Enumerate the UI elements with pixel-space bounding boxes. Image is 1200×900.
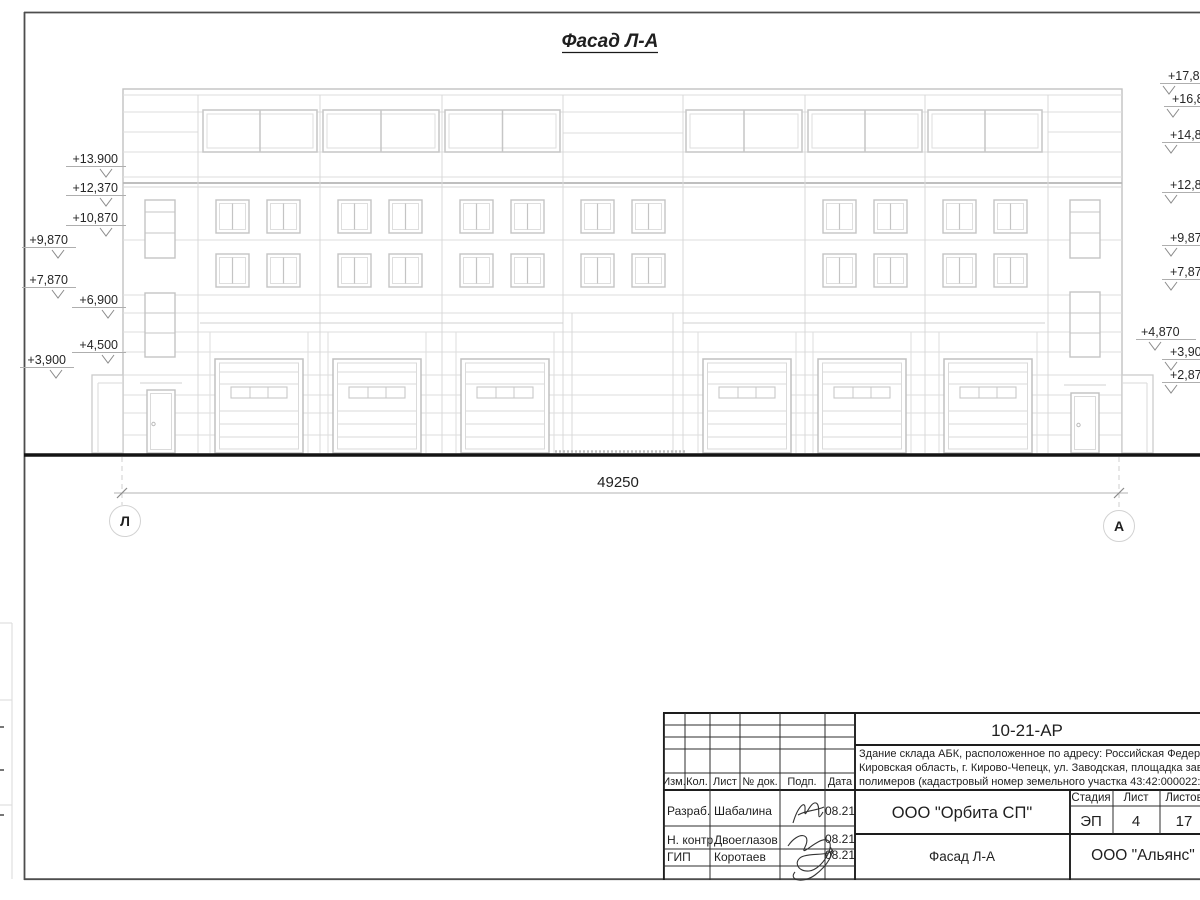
svg-text:+12,370: +12,370	[72, 181, 118, 195]
stage-label: Стадия	[1071, 792, 1110, 804]
level-mark: +14,870	[1162, 128, 1200, 153]
col-date: Дата	[828, 776, 853, 788]
level-mark: +4,500	[72, 338, 126, 363]
drawing-sheet: Фасад Л-А +13.900 +12,370 +10,870 +9,870…	[0, 0, 1200, 900]
level-mark: +3,900	[20, 353, 74, 378]
level-mark: +7,870	[1162, 265, 1200, 290]
sheet-number: 4	[1132, 813, 1140, 830]
level-mark: +10,870	[66, 211, 126, 236]
svg-text:+16,870: +16,870	[1172, 92, 1200, 106]
svg-text:+9,870: +9,870	[1170, 231, 1200, 245]
col-kol: Кол.	[686, 776, 708, 788]
row2-name: Двоеглазов	[714, 833, 778, 847]
level-mark: +12,870	[1162, 178, 1200, 203]
dimension-49250: 49250	[114, 457, 1128, 509]
axis-bubble-right: А	[1104, 511, 1135, 542]
svg-text:+9,870: +9,870	[29, 233, 68, 247]
doc-number: 10-21-АР	[991, 721, 1063, 740]
page-title: Фасад Л-А	[562, 31, 659, 52]
sheets-label: Листов	[1165, 792, 1200, 804]
description-line1: Здание склада АБК, расположенное по адре…	[859, 748, 1200, 760]
svg-text:+12,870: +12,870	[1170, 178, 1200, 192]
svg-text:+4,500: +4,500	[79, 338, 118, 352]
facade-sheet-svg: Фасад Л-А +13.900 +12,370 +10,870 +9,870…	[0, 0, 1200, 900]
col-izm: Изм.	[662, 776, 686, 788]
level-mark: +3,900	[1162, 345, 1200, 370]
col-sign: Подп.	[787, 776, 816, 788]
elevation-marks-left: +13.900 +12,370 +10,870 +9,870 +7,870 +6…	[20, 152, 126, 378]
drawing-name: Фасад Л-А	[929, 849, 995, 864]
level-mark: +2,870	[1162, 368, 1200, 393]
svg-text:+7,870: +7,870	[29, 273, 68, 287]
level-mark: +13.900	[66, 152, 126, 177]
row1-date: 08.21	[825, 804, 855, 818]
design-org: ООО "Орбита СП"	[892, 804, 1033, 822]
col-list: Лист	[713, 776, 737, 788]
axis-label-l: Л	[120, 513, 130, 529]
row3-role: ГИП	[667, 850, 691, 864]
level-mark: +6,900	[72, 293, 126, 318]
svg-text:+3,900: +3,900	[1170, 345, 1200, 359]
title-block: Изм. Кол. Лист № док. Подп. Дата Разраб.…	[662, 713, 1200, 880]
svg-text:+14,870: +14,870	[1170, 128, 1200, 142]
level-mark: +9,870	[22, 233, 76, 258]
customer-company: ООО "Альянс"	[1091, 847, 1195, 864]
svg-text:+7,870: +7,870	[1170, 265, 1200, 279]
level-mark: +9,870	[1162, 231, 1200, 256]
row2-role: Н. контр.	[667, 833, 717, 847]
adjacent-sheet-fragment	[0, 623, 12, 879]
svg-text:+6,900: +6,900	[79, 293, 118, 307]
signature-shabalina	[793, 803, 824, 823]
level-mark: +12,370	[66, 181, 126, 206]
svg-text:+13.900: +13.900	[72, 152, 118, 166]
level-mark: +16,870	[1164, 92, 1200, 117]
svg-text:+10,870: +10,870	[72, 211, 118, 225]
level-mark: +17,870	[1160, 69, 1200, 94]
stage-value: ЭП	[1080, 813, 1102, 830]
sheets-total: 17	[1176, 813, 1193, 830]
svg-text:+2,870: +2,870	[1170, 368, 1200, 382]
row3-name: Коротаев	[714, 850, 766, 864]
dimension-value: 49250	[597, 474, 639, 491]
row1-role: Разраб.	[667, 804, 710, 818]
description-line3: полимеров (кадастровый номер земельного …	[859, 776, 1200, 788]
row1-name: Шабалина	[714, 804, 772, 818]
clerestory-window-band	[203, 110, 1042, 152]
office-windows	[216, 200, 1027, 287]
level-mark: +7,870	[22, 273, 76, 298]
svg-text:+17,870: +17,870	[1168, 69, 1200, 83]
sheet-label: Лист	[1124, 792, 1150, 804]
svg-text:+4,870: +4,870	[1141, 325, 1180, 339]
col-doc: № док.	[742, 776, 777, 788]
description-line2: Кировская область, г. Кирово-Чепецк, ул.…	[859, 762, 1200, 774]
axis-bubble-left: Л	[110, 506, 141, 537]
svg-text:+3,900: +3,900	[27, 353, 66, 367]
row2-date: 08.21	[825, 832, 855, 846]
axis-label-a: А	[1114, 518, 1124, 534]
elevation-marks-right: +17,870 +16,870 +14,870 +12,870 +9,870 +…	[1136, 69, 1200, 393]
